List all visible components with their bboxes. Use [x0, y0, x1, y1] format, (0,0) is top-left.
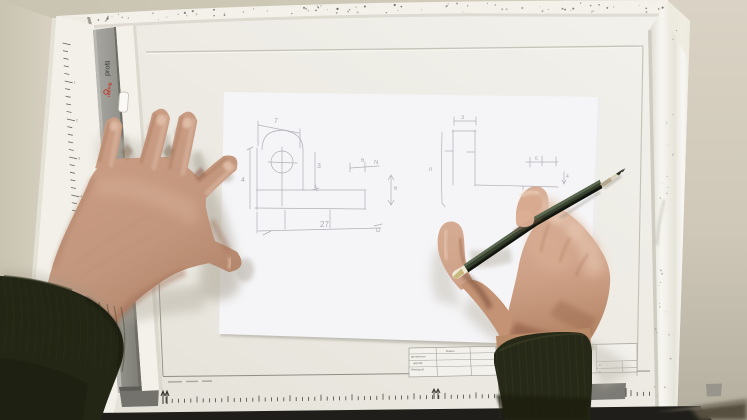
svg-text:4: 4 [241, 177, 245, 184]
svg-text:n: n [429, 167, 432, 173]
svg-text:3: 3 [78, 157, 80, 161]
svg-text:Datum: Datum [446, 349, 455, 353]
svg-text:6: 6 [535, 156, 538, 162]
svg-text:2: 2 [76, 119, 78, 123]
svg-text:3: 3 [317, 163, 321, 170]
svg-text:1: 1 [74, 81, 76, 85]
svg-text:27: 27 [320, 220, 329, 229]
svg-text:geprüft: geprüft [413, 361, 423, 365]
svg-text:profil: profil [104, 60, 112, 76]
svg-text:gezeichnet: gezeichnet [411, 355, 426, 359]
svg-text:Werkstoff: Werkstoff [411, 368, 424, 372]
svg-text:4: 4 [566, 174, 569, 180]
svg-text:7: 7 [274, 118, 278, 125]
svg-text:D: D [376, 228, 381, 234]
svg-text:N: N [374, 160, 378, 166]
